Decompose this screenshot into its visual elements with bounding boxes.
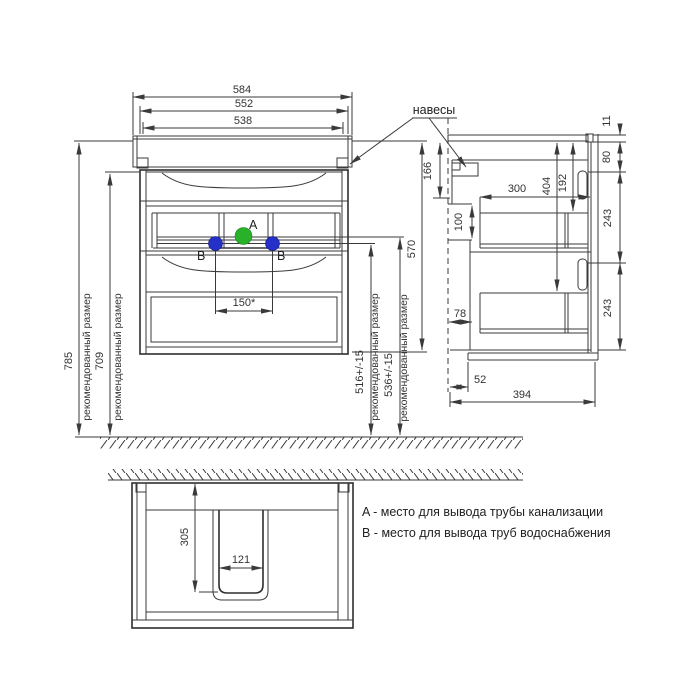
svg-text:536+/-15: 536+/-15 <box>383 353 395 397</box>
svg-text:584: 584 <box>233 84 251 96</box>
svg-text:рекомендованный размер: рекомендованный размер <box>369 293 381 421</box>
dim-width-538: 538 <box>143 115 343 134</box>
dim-cutout-305: 305 <box>179 484 218 592</box>
drawer2-handle-groove <box>162 257 326 272</box>
svg-text:192: 192 <box>557 174 569 192</box>
svg-text:121: 121 <box>232 554 250 566</box>
dim-drain-depth-404: 404 <box>541 143 557 291</box>
svg-text:243: 243 <box>602 299 614 317</box>
label-point-b-right: B <box>277 249 285 263</box>
wall-hatch <box>108 469 523 480</box>
drawer2-handle-profile <box>578 259 587 290</box>
bottom-view: 305 121 <box>132 483 353 628</box>
water-point-b-left <box>209 237 223 251</box>
dim-hanger-166: 166 <box>422 143 450 198</box>
svg-text:243: 243 <box>602 209 614 227</box>
label-point-b-left: B <box>197 249 205 263</box>
svg-text:394: 394 <box>513 389 531 401</box>
svg-text:150*: 150* <box>233 297 256 309</box>
svg-text:785: 785 <box>63 352 75 370</box>
dim-height-709: 709 рекомендованный размер <box>94 172 140 435</box>
svg-text:305: 305 <box>179 528 191 546</box>
dim-back-gap-100: 100 <box>453 206 472 238</box>
dim-bottom-gap-52: 52 <box>450 362 486 392</box>
svg-text:рекомендованный размер: рекомендованный размер <box>398 294 410 422</box>
legend-water-line: B - место для вывода труб водоснабжения <box>362 526 611 540</box>
floor-hatch <box>75 437 523 449</box>
dim-top-offset-192: 192 <box>557 143 573 211</box>
dim-height-570: 570 <box>352 141 427 352</box>
drawer1-handle-groove <box>162 173 326 188</box>
svg-text:рекомендованный размер: рекомендованный размер <box>112 293 124 421</box>
svg-text:709: 709 <box>94 352 106 370</box>
front-view: A B B 584 552 538 785 рекомен <box>63 84 427 435</box>
svg-text:80: 80 <box>601 151 613 163</box>
side-countertop <box>448 135 588 141</box>
technical-drawing-page: A B B 584 552 538 785 рекомен <box>0 0 700 700</box>
svg-text:538: 538 <box>234 115 252 127</box>
svg-text:рекомендованный размер: рекомендованный размер <box>81 293 93 421</box>
svg-text:166: 166 <box>422 162 434 180</box>
drawer-box-2 <box>480 293 588 333</box>
svg-text:570: 570 <box>406 240 418 258</box>
svg-text:404: 404 <box>541 177 553 195</box>
svg-text:навесы: навесы <box>413 103 456 117</box>
svg-text:11: 11 <box>601 115 613 126</box>
legend: A - место для вывода трубы канализации B… <box>362 505 611 540</box>
washbasin-top <box>133 136 352 168</box>
svg-text:52: 52 <box>474 374 486 386</box>
dim-depth-394: 394 <box>450 362 595 407</box>
legend-drain-line: A - место для вывода трубы канализации <box>362 505 603 519</box>
svg-text:78: 78 <box>454 308 466 320</box>
dim-water-spacing-150: 150* <box>216 297 273 311</box>
dim-cutout-121: 121 <box>219 554 263 568</box>
svg-text:100: 100 <box>453 213 465 231</box>
dim-height-536: 536+/-15 рекомендованный размер <box>383 238 410 435</box>
drawer-box-1 <box>480 213 588 248</box>
label-point-a: A <box>249 218 258 232</box>
svg-text:300: 300 <box>508 183 526 195</box>
drawer1-handle-profile <box>578 171 587 199</box>
dim-height-516: 516+/-15 рекомендованный размер <box>354 245 381 435</box>
dim-bottom-back-78: 78 <box>449 308 472 322</box>
svg-text:516+/-15: 516+/-15 <box>354 350 366 394</box>
vanity-cabinet-drawing: A B B 584 552 538 785 рекомен <box>0 0 700 700</box>
svg-text:552: 552 <box>235 98 253 110</box>
